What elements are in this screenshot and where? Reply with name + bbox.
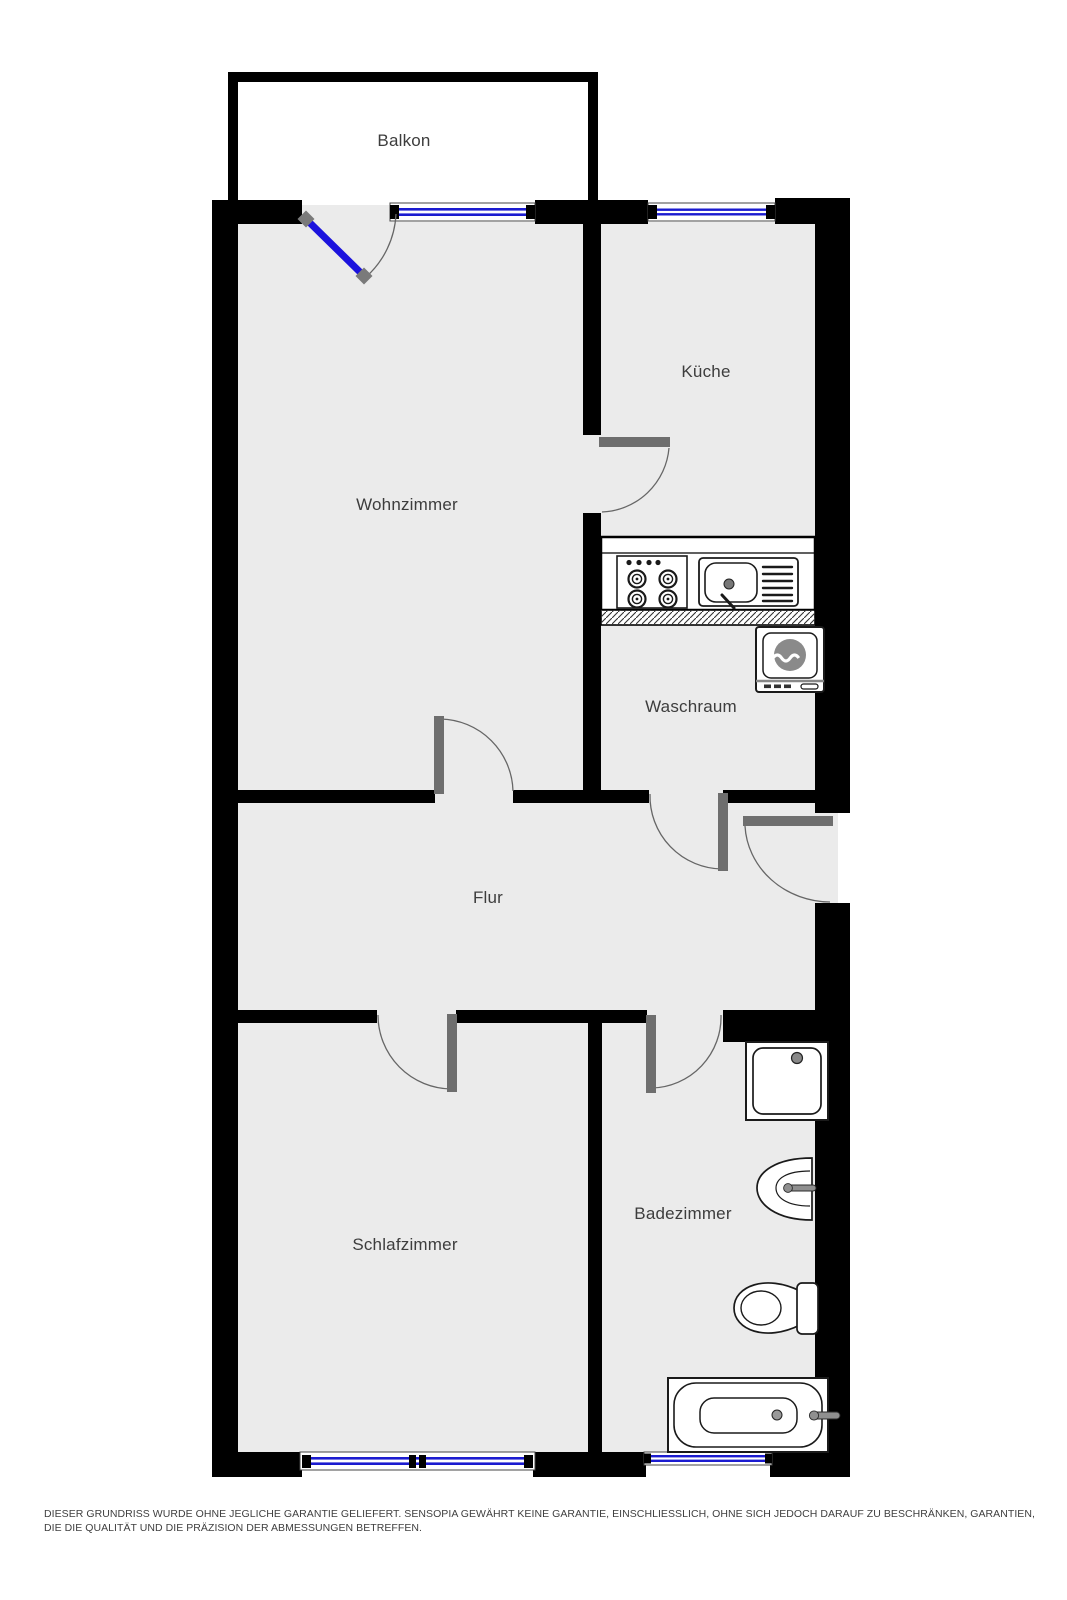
room-label-schlafzimmer: Schlafzimmer — [352, 1235, 458, 1254]
door-leaf — [599, 437, 670, 447]
wall-bottom-c — [770, 1452, 850, 1477]
floors — [238, 82, 838, 1452]
balcony-wall-right — [588, 72, 598, 205]
room-label-waschraum: Waschraum — [645, 697, 737, 716]
bathtub-icon — [668, 1378, 840, 1452]
room-label-kueche: Küche — [681, 362, 730, 381]
door-leaf — [434, 716, 444, 794]
wall-divider-kitchen-lower — [583, 513, 601, 790]
bathroom-window — [644, 1452, 772, 1465]
door-leaf — [447, 1014, 457, 1092]
disclaimer-text: DIESER GRUNDRISS WURDE OHNE JEGLICHE GAR… — [44, 1507, 1044, 1535]
wall-hall-bottom-a — [238, 1010, 377, 1023]
washing-machine-icon — [756, 627, 824, 692]
room-label-flur: Flur — [473, 888, 503, 907]
wall-bottom-a — [212, 1452, 302, 1477]
entrance-threshold — [815, 813, 838, 903]
wall-hall-top-c — [723, 790, 815, 803]
wall-right-upper — [815, 198, 850, 813]
balcony-wall-left — [228, 72, 238, 205]
door-leaf — [743, 816, 833, 826]
balcony-wall-top — [228, 72, 598, 82]
living-room-window — [390, 203, 535, 221]
toilet-icon — [734, 1283, 818, 1334]
kitchen-sink-icon — [699, 558, 798, 608]
wall-hall-top-b — [513, 790, 649, 803]
kitchen-counter — [601, 537, 815, 610]
floor-plan-canvas: Balkon Wohnzimmer Küche Waschraum Flur S… — [0, 0, 1067, 1600]
wall-bottom-b — [533, 1452, 646, 1477]
shower-icon — [746, 1042, 828, 1120]
wall-divider-kitchen-upper — [583, 222, 601, 435]
stove-icon — [617, 556, 687, 608]
hatched-partition — [601, 610, 815, 625]
wall-hall-bottom-b — [456, 1010, 647, 1023]
wall-top-b — [535, 200, 648, 224]
wall-hall-bottom-c — [723, 1010, 850, 1042]
bedroom-window — [300, 1452, 535, 1470]
room-label-wohnzimmer: Wohnzimmer — [356, 495, 458, 514]
room-label-balkon: Balkon — [377, 131, 430, 150]
wall-divider-bathroom — [588, 1010, 602, 1452]
wall-hall-top-a — [238, 790, 435, 803]
toilet-tank — [797, 1283, 818, 1334]
room-label-badezimmer: Badezimmer — [634, 1204, 732, 1223]
wall-left — [212, 200, 238, 1477]
floor-plan-page: Balkon Wohnzimmer Küche Waschraum Flur S… — [0, 0, 1067, 1600]
door-leaf — [646, 1015, 656, 1093]
apartment-floor — [238, 222, 815, 1452]
kitchen-window — [648, 203, 775, 221]
door-leaf — [718, 793, 728, 871]
